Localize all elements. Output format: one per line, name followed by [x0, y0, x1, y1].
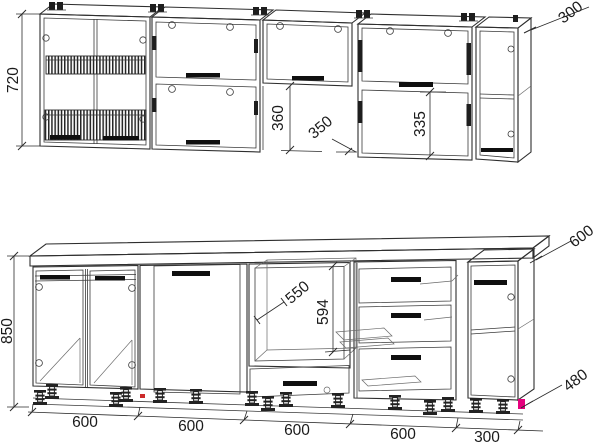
drawer-handle: [391, 355, 421, 360]
dim-label-width-4: 600: [390, 426, 416, 443]
wall-cabinet-flap-double-2: [358, 14, 485, 160]
dim-base-end-height: 480: [521, 366, 591, 408]
flap-handle: [186, 73, 220, 78]
drawer-handle: [283, 381, 317, 386]
dim-label-350: 350: [305, 113, 336, 143]
flap-handle: [399, 82, 433, 87]
dim-base-height: 850: [0, 252, 29, 411]
dim-upper-door-height: 335: [412, 88, 446, 160]
flap-handle: [292, 76, 324, 81]
dim-label-300-upper: 300: [555, 0, 586, 27]
door-handle: [40, 275, 70, 280]
dim-label-335: 335: [412, 111, 429, 137]
dim-niche-width: 550: [254, 278, 313, 324]
door-handle: [103, 136, 139, 141]
dim-label-480: 480: [560, 366, 591, 395]
shelf-front-strip: [481, 148, 513, 152]
base-cabinet-end: [468, 249, 534, 409]
base-cabinet-single-door: [140, 264, 247, 394]
kitchen-technical-drawing: 720 300 360 350 335: [0, 0, 600, 447]
dim-bottom-widths: 600 600 600 600 300: [28, 404, 543, 446]
red-marker: [140, 394, 145, 398]
dim-upper-end-width: 300: [524, 0, 589, 33]
flap-handle: [186, 140, 220, 145]
drawer-handle: [391, 313, 421, 318]
dim-label-720: 720: [5, 67, 22, 93]
dim-label-600-depth: 600: [566, 222, 597, 251]
drawer-unit: [336, 261, 458, 401]
dim-label-550: 550: [282, 278, 313, 308]
door-handle: [95, 276, 125, 281]
drawer-handle: [391, 277, 421, 282]
wall-cabinets-elevation: 720 300 360 350 335: [5, 0, 589, 162]
base-cabinets-elevation: 550 594: [0, 222, 597, 446]
dim-label-width-3: 600: [284, 422, 310, 439]
door-handle: [474, 280, 507, 285]
dim-upper-open-gap: 360: [270, 82, 322, 154]
dim-label-850: 850: [0, 318, 16, 344]
mounting-brackets: [47, 2, 518, 22]
door-handle: [50, 135, 80, 140]
door-handle: [172, 271, 210, 276]
dim-label-360: 360: [270, 105, 287, 131]
dim-label-width-5: 300: [474, 429, 500, 446]
wall-cabinet-flap-single: [263, 10, 365, 86]
wall-cabinet-dish-rack: [40, 4, 163, 149]
wall-cabinet-open-end: [476, 17, 531, 162]
base-cabinet-two-door: [33, 266, 138, 390]
dim-label-width-1: 600: [72, 414, 98, 431]
dim-upper-depth: 350: [305, 113, 357, 155]
dim-label-width-2: 600: [178, 418, 204, 435]
dim-label-594: 594: [315, 299, 332, 325]
dim-upper-height: 720: [5, 10, 40, 150]
wall-cabinet-flap-double: [152, 7, 273, 152]
dish-rack-upper: [46, 56, 145, 74]
drawing-canvas: 720 300 360 350 335: [0, 0, 600, 447]
